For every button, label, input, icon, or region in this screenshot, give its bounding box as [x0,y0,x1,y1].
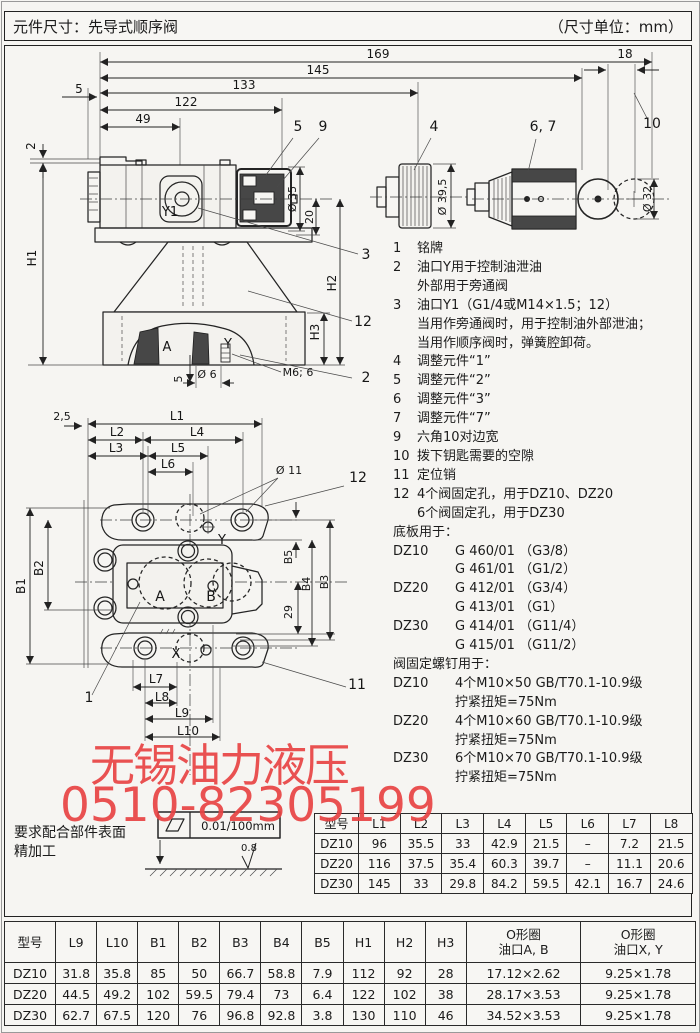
note-text: 调整元件“7” [417,410,491,429]
table-cell: 20.6 [650,854,692,874]
column-header: L3 [442,814,484,834]
table-cell: 58.8 [261,963,302,984]
watermark-phone: 0510-82305199 [60,778,436,833]
note-line: DZ204个M10×60 GB/T70.1-10.9级 [393,713,695,732]
table-row: DZ2011637.535.460.339.7–11.120.6 [315,854,693,874]
table-cell: 59.5 [525,874,567,894]
table-cell: 42.9 [484,834,526,854]
note-line: 2油口Y用于控制油泄油 [393,259,695,278]
column-header: B5 [302,922,343,963]
table-cell: 130 [343,1005,384,1026]
table-cell: 122 [343,984,384,1005]
table-cell: 38 [425,984,466,1005]
note-line: DZ306个M10×70 GB/T70.1-10.9级 [393,750,695,769]
note-line: 4调整元件“1” [393,353,695,372]
table-row: DZ1031.835.8855066.758.87.9112922817.12×… [5,963,696,984]
note-line: DZ30G 414/01 （G11/4） [393,618,695,637]
table-cell: 116 [359,854,401,874]
table-cell: 9.25×1.78 [581,984,696,1005]
note-line: 9六角10对边宽 [393,429,695,448]
note-text: 六角10对边宽 [417,429,499,448]
table-cell: 62.7 [56,1005,97,1026]
note-line: 当用作顺序阀时，弹簧腔卸荷。 [393,335,695,354]
note-number: 3 [393,297,417,316]
table-cell: 84.2 [484,874,526,894]
table-cell: 49.2 [97,984,138,1005]
note-line: 3油口Y1（G1/4或M14×1.5；12） [393,297,695,316]
note-line: 7调整元件“7” [393,410,695,429]
table-row: DZ2044.549.210259.579.4736.41221023828.1… [5,984,696,1005]
table-cell: 28.17×3.53 [466,984,581,1005]
table-row: DZ109635.53342.921.5–7.221.5 [315,834,693,854]
column-header: H1 [343,922,384,963]
note-line: 1铭牌 [393,240,695,259]
note-text: 4个M10×50 GB/T70.1-10.9级 [455,675,643,694]
table-cell: 120 [138,1005,179,1026]
table-cell: 7.2 [609,834,651,854]
table-cell: 112 [343,963,384,984]
note-text: 调整元件“1” [417,353,491,372]
column-header: B3 [220,922,261,963]
table-cell: DZ10 [5,963,56,984]
table-cell: 35.8 [97,963,138,984]
note-text: 定位销 [417,467,456,486]
note-number: 10 [393,448,417,467]
table-cell: 79.4 [220,984,261,1005]
table-row: DZ301453329.884.259.542.116.724.6 [315,874,693,894]
table-cell: 96 [359,834,401,854]
note-text: 4个阀固定孔，用于DZ10、DZ20 [417,486,613,505]
table-cell: 29.8 [442,874,484,894]
note-line: 底板用于： [393,524,695,543]
note-text: 6个M10×70 GB/T70.1-10.9级 [455,750,643,769]
table-cell: 59.5 [179,984,220,1005]
table-cell: 39.7 [525,854,567,874]
note-number: 9 [393,429,417,448]
column-header: B4 [261,922,302,963]
table-cell: 31.8 [56,963,97,984]
note-text: 拨下钥匙需要的空隙 [417,448,534,467]
note-text: 调整元件“2” [417,372,491,391]
column-header: L10 [97,922,138,963]
table-cell: 17.12×2.62 [466,963,581,984]
column-header: L7 [609,814,651,834]
column-header: B1 [138,922,179,963]
note-text: 4个M10×60 GB/T70.1-10.9级 [455,713,643,732]
table-cell: 145 [359,874,401,894]
note-line: 外部用于旁通阀 [393,278,695,297]
note-number: 2 [393,259,417,278]
note-line: 6个阀固定孔，用于DZ30 [393,505,695,524]
table-cell: 28 [425,963,466,984]
table-cell: 11.1 [609,854,651,874]
dimension-table-main: 型号L9L10B1B2B3B4B5H1H2H3O形圈油口A, BO形圈油口X, … [4,921,696,1026]
unit-note: （尺寸单位：mm） [549,16,683,37]
note-line: 当用作旁通阀时，用于控制油外部泄油； [393,316,695,335]
column-header: O形圈油口A, B [466,922,581,963]
note-line: G 461/01 （G1/2） [393,561,695,580]
note-line: G 413/01 （G1） [393,599,695,618]
table-cell: 66.7 [220,963,261,984]
note-number: 4 [393,353,417,372]
note-line: 拧紧扭矩=75Nm [393,694,695,713]
table-cell: 92 [384,963,425,984]
note-line: 124个阀固定孔，用于DZ10、DZ20 [393,486,695,505]
note-line: 6调整元件“3” [393,391,695,410]
table-cell: 85 [138,963,179,984]
column-header: O形圈油口X, Y [581,922,696,963]
table-cell: 76 [179,1005,220,1026]
table-cell: DZ30 [5,1005,56,1026]
note-line: DZ104个M10×50 GB/T70.1-10.9级 [393,675,695,694]
note-line: G 415/01 （G11/2） [393,637,695,656]
table-cell: DZ20 [315,854,359,874]
note-number: DZ30 [393,750,455,769]
table-cell: 60.3 [484,854,526,874]
note-line: 拧紧扭矩=75Nm [393,769,695,788]
note-line: DZ10G 460/01 （G3/8） [393,543,695,562]
note-text: 油口Y1（G1/4或M14×1.5；12） [417,297,618,316]
note-number: DZ30 [393,618,455,637]
table-cell: 110 [384,1005,425,1026]
note-text: 调整元件“3” [417,391,491,410]
note-line: 拧紧扭矩=75Nm [393,732,695,751]
dimension-table-main-grid: 型号L9L10B1B2B3B4B5H1H2H3O形圈油口A, BO形圈油口X, … [4,921,696,1026]
note-number: DZ20 [393,713,455,732]
table-cell: 33 [442,834,484,854]
table-cell: 67.5 [97,1005,138,1026]
note-line: 阀固定螺钉用于： [393,656,695,675]
note-number: DZ10 [393,543,455,562]
column-header: L4 [484,814,526,834]
note-text: G 460/01 （G3/8） [455,543,576,562]
table-cell: 33 [400,874,442,894]
table-cell: 21.5 [525,834,567,854]
column-header: H3 [425,922,466,963]
note-line: 5调整元件“2” [393,372,695,391]
table-cell: DZ30 [315,874,359,894]
note-line: 11定位销 [393,467,695,486]
column-header: B2 [179,922,220,963]
note-text: G 414/01 （G11/4） [455,618,584,637]
datasheet-page: { "header": { "title": "元件尺寸：先导式顺序阀", "u… [0,0,700,1033]
table-cell: 73 [261,984,302,1005]
title-bar: 元件尺寸：先导式顺序阀 （尺寸单位：mm） [4,11,692,41]
column-header: L6 [567,814,609,834]
table-header-row: 型号L9L10B1B2B3B4B5H1H2H3O形圈油口A, BO形圈油口X, … [5,922,696,963]
column-header: L9 [56,922,97,963]
table-cell: 37.5 [400,854,442,874]
table-cell: 21.5 [650,834,692,854]
table-cell: 24.6 [650,874,692,894]
note-line: 10拨下钥匙需要的空隙 [393,448,695,467]
note-number: DZ20 [393,580,455,599]
note-line: DZ20G 412/01 （G3/4） [393,580,695,599]
note-number: DZ10 [393,675,455,694]
table-cell: 92.8 [261,1005,302,1026]
column-header: H2 [384,922,425,963]
note-number: 1 [393,240,417,259]
column-header: L8 [650,814,692,834]
table-cell: DZ20 [5,984,56,1005]
table-cell: 7.9 [302,963,343,984]
table-cell: 9.25×1.78 [581,1005,696,1026]
note-text: 油口Y用于控制油泄油 [417,259,542,278]
table-cell: 35.5 [400,834,442,854]
table-cell: 42.1 [567,874,609,894]
table-cell: 46 [425,1005,466,1026]
table-cell: 102 [384,984,425,1005]
table-cell: 102 [138,984,179,1005]
table-cell: 35.4 [442,854,484,874]
table-cell: 6.4 [302,984,343,1005]
note-text: 铭牌 [417,240,443,259]
note-number: 11 [393,467,417,486]
page-title: 元件尺寸：先导式顺序阀 [13,16,178,37]
notes-list: 1铭牌2油口Y用于控制油泄油外部用于旁通阀3油口Y1（G1/4或M14×1.5；… [393,240,695,788]
surface-note-line2: 精加工 [14,843,126,862]
table-cell: – [567,854,609,874]
note-number: 7 [393,410,417,429]
note-number: 12 [393,486,417,505]
table-cell: 96.8 [220,1005,261,1026]
table-cell: 16.7 [609,874,651,894]
column-header: 型号 [5,922,56,963]
table-cell: 50 [179,963,220,984]
note-text: G 412/01 （G3/4） [455,580,576,599]
table-cell: – [567,834,609,854]
table-cell: DZ10 [315,834,359,854]
table-cell: 34.52×3.53 [466,1005,581,1026]
table-cell: 3.8 [302,1005,343,1026]
table-row: DZ3062.767.51207696.892.83.81301104634.5… [5,1005,696,1026]
table-cell: 44.5 [56,984,97,1005]
note-number: 6 [393,391,417,410]
note-number: 5 [393,372,417,391]
table-cell: 9.25×1.78 [581,963,696,984]
column-header: L5 [525,814,567,834]
